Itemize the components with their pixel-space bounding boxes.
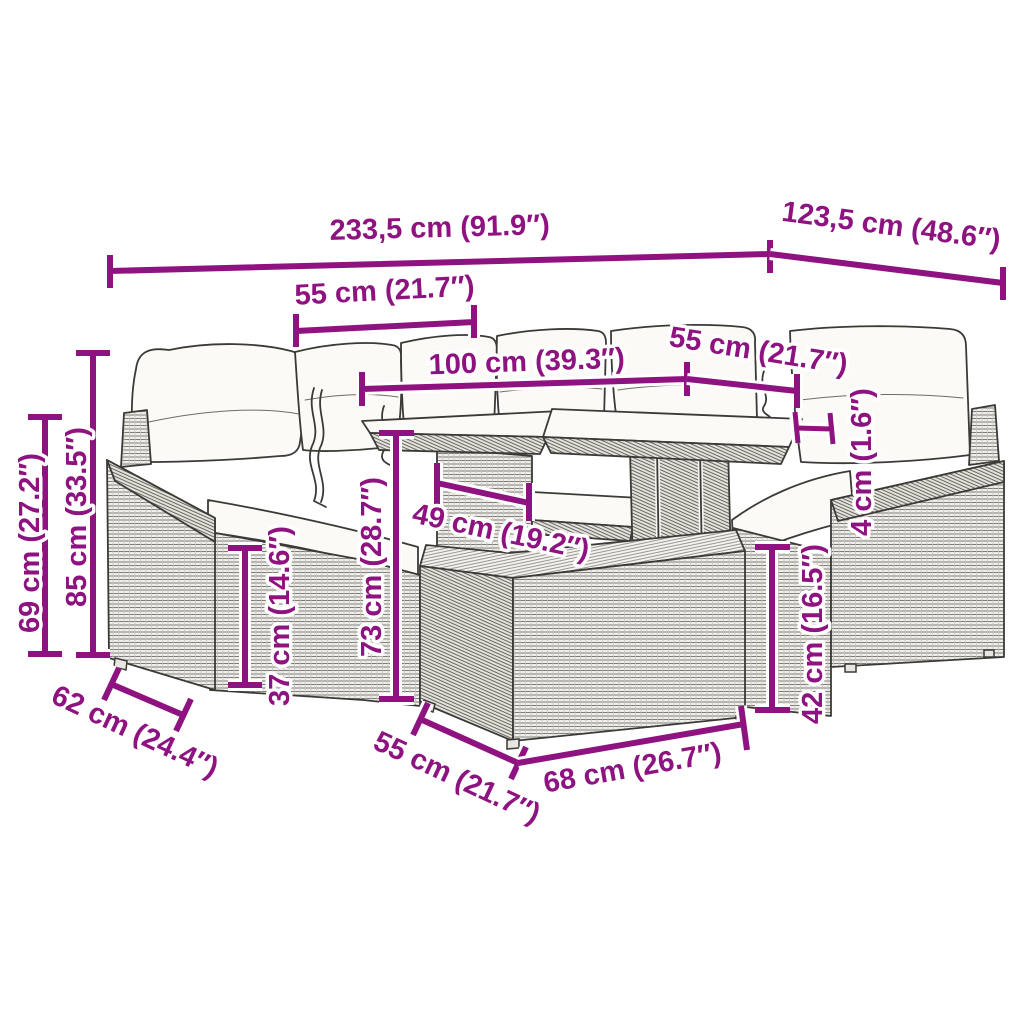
dim-glass-thickness-label: 4 cm (1.6″) bbox=[846, 388, 878, 536]
right-armrest-post bbox=[969, 405, 999, 465]
furniture-dimension-diagram: 233,5 cm (91.9″) 123,5 cm (48.6″) 55 cm … bbox=[0, 0, 1024, 1024]
dim-table-length-label: 100 cm (39.3″) bbox=[428, 343, 625, 382]
dim-back-height-label: 69 cm (27.2″) bbox=[14, 453, 46, 633]
footstool-front bbox=[513, 551, 745, 741]
dim-seat-height-label: 37 cm (14.6″) bbox=[264, 526, 296, 706]
left-armrest-post bbox=[121, 410, 151, 467]
dim-table-height-label: 73 cm (28.7″) bbox=[356, 477, 388, 657]
dim-total-height-label: 85 cm (33.5″) bbox=[61, 427, 93, 607]
dim-total-width-label: 233,5 cm (91.9″) bbox=[329, 209, 550, 247]
dim-footstool-height-label: 42 cm (16.5″) bbox=[797, 544, 829, 724]
